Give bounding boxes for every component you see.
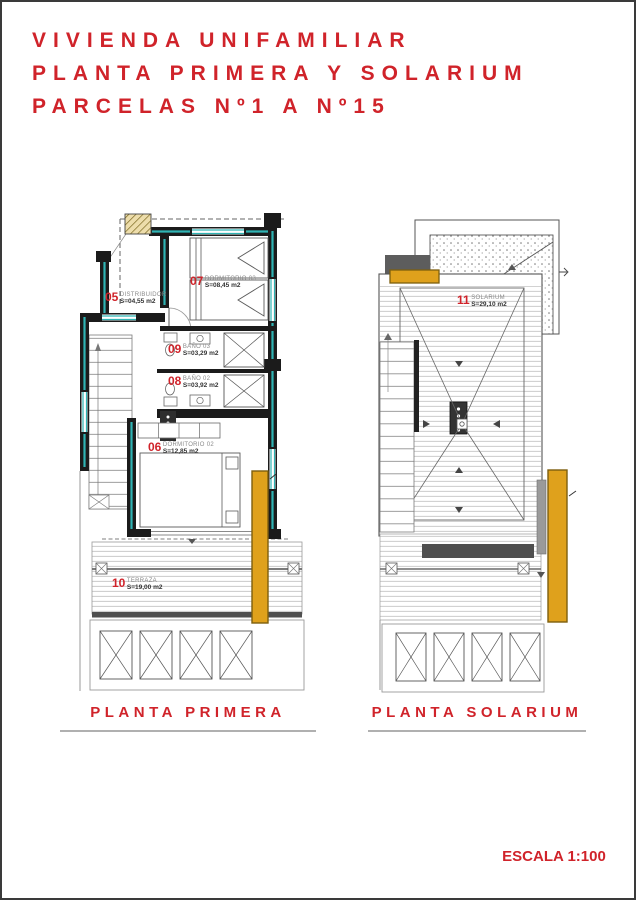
- plan-primera: 05 DISTRIBUIDORS=04,55 m2 07 DORMITORIO …: [72, 207, 322, 707]
- room-label-terraza: 10 TERRAZAS=19,00 m2: [112, 577, 162, 591]
- planter-dark-bar: [422, 544, 534, 558]
- title-line-2: PLANTA PRIMERA Y SOLARIUM: [32, 57, 529, 90]
- sheet-title: VIVIENDA UNIFAMILIAR PLANTA PRIMERA Y SO…: [32, 24, 529, 123]
- railing-post: [96, 563, 107, 574]
- room-number: 08: [168, 375, 181, 387]
- room-area: S=03,29 m2: [183, 351, 219, 358]
- room-area: S=29,10 m2: [471, 302, 507, 309]
- awning-yellow-top: [390, 270, 439, 283]
- room-area: S=19,00 m2: [127, 585, 163, 592]
- pergola-skylights: [382, 624, 544, 692]
- room-number: 07: [190, 275, 203, 287]
- bed-dormitorio-02: [140, 453, 240, 527]
- roof-drain: [457, 419, 467, 429]
- room-number: 06: [148, 441, 161, 453]
- room-label-dormitorio-03: 07 DORMITORIO 03S=08,45 m2: [190, 275, 256, 289]
- drawing-sheet: VIVIENDA UNIFAMILIAR PLANTA PRIMERA Y SO…: [0, 0, 636, 900]
- room-label-bano-02: 08 BAÑO 02S=03,92 m2: [168, 375, 218, 389]
- room-label-bano-03: 09 BAÑO 03S=03,29 m2: [168, 343, 218, 357]
- awning-yellow-bar: [548, 470, 576, 622]
- title-line-1: VIVIENDA UNIFAMILIAR: [32, 24, 529, 57]
- caption-planta-primera: PLANTA PRIMERA: [60, 704, 316, 732]
- plan-solarium: 11 SOLARIUMS=29,10 m2: [372, 212, 582, 702]
- lower-terrace: [380, 534, 541, 620]
- solarium-plan-drawing: [372, 212, 582, 702]
- hatched-column: [125, 214, 151, 234]
- staircase: [89, 335, 132, 509]
- room-label-dormitorio-02: 06 DORMITORIO 02S=12,85 m2: [148, 441, 214, 455]
- room-number: 11: [457, 294, 470, 306]
- scale-label: ESCALA 1:100: [494, 848, 614, 865]
- wardrobe: [138, 423, 220, 438]
- railing-post: [386, 563, 397, 574]
- room-label-solarium: 11 SOLARIUMS=29,10 m2: [457, 294, 507, 308]
- title-line-3: PARCELAS Nº1 A Nº15: [32, 90, 529, 123]
- room-label-distribuidor: 05 DISTRIBUIDORS=04,55 m2: [105, 291, 166, 305]
- room-area: S=08,45 m2: [205, 283, 256, 290]
- pergola-skylights: [90, 620, 304, 690]
- room-number: 10: [112, 577, 125, 589]
- room-number: 09: [168, 343, 181, 355]
- staircase: [380, 333, 419, 532]
- room-area: S=12,85 m2: [163, 449, 214, 456]
- caption-planta-solarium: PLANTA SOLARIUM: [368, 704, 586, 732]
- room-number: 05: [105, 291, 118, 303]
- side-gray-bar: [537, 480, 546, 554]
- room-area: S=03,92 m2: [183, 383, 219, 390]
- railing-post: [518, 563, 529, 574]
- room-area: S=04,55 m2: [120, 299, 167, 306]
- railing-post: [288, 563, 299, 574]
